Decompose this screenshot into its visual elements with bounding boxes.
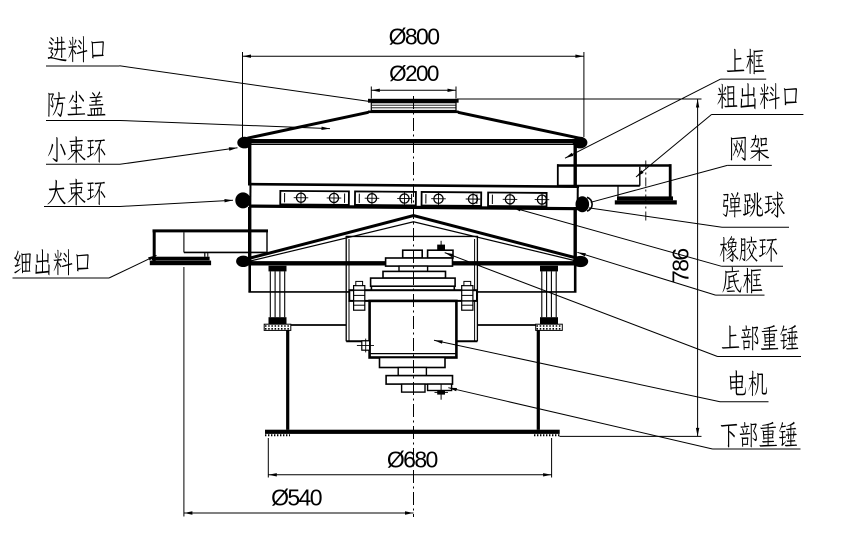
svg-text:Ø540: Ø540 <box>271 484 322 510</box>
svg-text:Ø680: Ø680 <box>387 446 438 472</box>
svg-text:Ø200: Ø200 <box>389 61 439 86</box>
svg-text:786: 786 <box>668 249 694 283</box>
svg-text:Ø800: Ø800 <box>389 24 440 50</box>
